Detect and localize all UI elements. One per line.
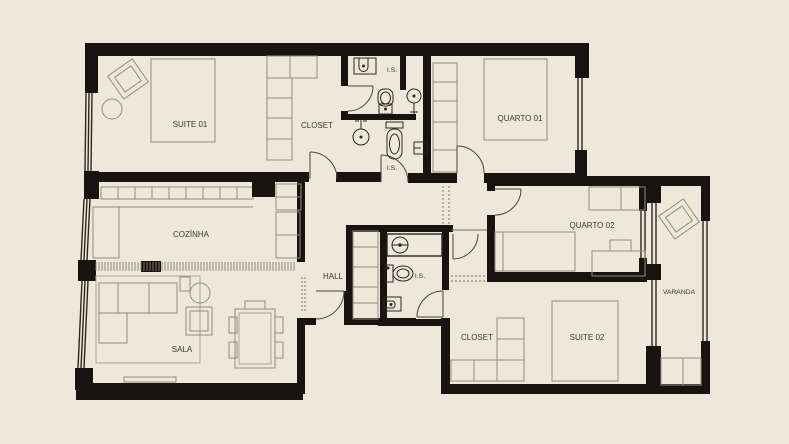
svg-text:CLOSET: CLOSET: [301, 121, 333, 130]
svg-text:SALA: SALA: [172, 345, 193, 354]
svg-text:COZÍNHA: COZÍNHA: [173, 230, 210, 239]
svg-text:I.S.: I.S.: [387, 67, 397, 74]
svg-text:SUITE 02: SUITE 02: [570, 333, 605, 342]
svg-text:QUARTO 02: QUARTO 02: [569, 221, 615, 230]
svg-text:VARANDA: VARANDA: [663, 289, 696, 296]
svg-text:I.S.: I.S.: [415, 273, 425, 280]
svg-text:HALL: HALL: [323, 272, 344, 281]
svg-text:SUITE 01: SUITE 01: [173, 120, 208, 129]
svg-text:I.S.: I.S.: [387, 165, 397, 172]
svg-text:CLOSET: CLOSET: [461, 333, 493, 342]
svg-text:QUARTO 01: QUARTO 01: [497, 114, 543, 123]
